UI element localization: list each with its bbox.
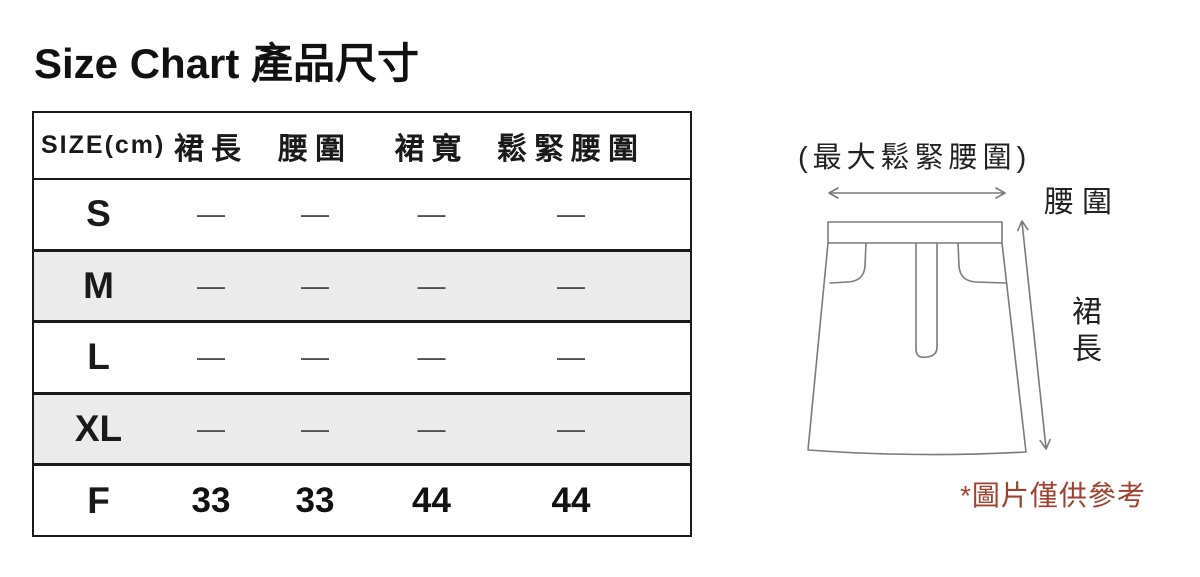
right-pocket-line xyxy=(958,243,1006,283)
size-chart-page: Size Chart 產品尺寸 SIZE(cm) 裙長 腰圍 裙寬 鬆緊腰圍 S… xyxy=(0,0,1200,577)
skirt-length-label: 裙長 xyxy=(1070,294,1104,368)
reference-note: *圖片僅供參考 xyxy=(960,474,1146,514)
col-header-skirt-length: 裙長 xyxy=(163,112,259,179)
value-cell: — xyxy=(163,322,259,393)
value-cell: — xyxy=(163,179,259,250)
value-cell: — xyxy=(371,393,492,464)
table-row-s: S — — — — xyxy=(33,179,691,250)
value-cell: 44 xyxy=(371,465,492,536)
value-cell: — xyxy=(163,393,259,464)
col-header-skirt-width: 裙寬 xyxy=(371,112,492,179)
col-header-elastic-waist: 鬆緊腰圍 xyxy=(492,112,691,179)
table-row-m: M — — — — xyxy=(33,250,691,321)
value-cell: — xyxy=(163,250,259,321)
col-header-size: SIZE(cm) xyxy=(33,112,163,179)
value-cell: 33 xyxy=(259,465,371,536)
value-cell: — xyxy=(492,322,691,393)
size-cell: S xyxy=(33,179,163,250)
size-cell: XL xyxy=(33,393,163,464)
max-elastic-waist-label: (最大鬆緊腰圍) xyxy=(798,134,1031,176)
table-row-f: F 33 33 44 44 xyxy=(33,465,691,536)
value-cell: 44 xyxy=(492,465,691,536)
center-placket-line xyxy=(916,243,937,357)
waistband-outline xyxy=(828,222,1002,243)
size-cell: L xyxy=(33,322,163,393)
value-cell: — xyxy=(259,179,371,250)
waist-label: 腰圍 xyxy=(1044,177,1120,221)
skirt-diagram: (最大鬆緊腰圍) 腰圍 裙長 *圖片僅供參考 xyxy=(780,130,1200,550)
value-cell: — xyxy=(492,250,691,321)
table-header-row: SIZE(cm) 裙長 腰圍 裙寬 鬆緊腰圍 xyxy=(33,112,691,179)
left-pocket-line xyxy=(830,243,866,283)
value-cell: — xyxy=(371,179,492,250)
value-cell: — xyxy=(259,250,371,321)
col-header-waist: 腰圍 xyxy=(259,112,371,179)
value-cell: — xyxy=(371,322,492,393)
size-table: SIZE(cm) 裙長 腰圍 裙寬 鬆緊腰圍 S — — — — M — — —… xyxy=(32,111,692,537)
page-title: Size Chart 產品尺寸 xyxy=(34,30,419,91)
value-cell: 33 xyxy=(163,465,259,536)
value-cell: — xyxy=(259,393,371,464)
size-cell: M xyxy=(33,250,163,321)
size-cell: F xyxy=(33,465,163,536)
value-cell: — xyxy=(259,322,371,393)
value-cell: — xyxy=(371,250,492,321)
skirt-body-outline xyxy=(808,243,1026,455)
value-cell: — xyxy=(492,179,691,250)
table-row-l: L — — — — xyxy=(33,322,691,393)
table-row-xl: XL — — — — xyxy=(33,393,691,464)
length-arrow xyxy=(1022,222,1046,448)
value-cell: — xyxy=(492,393,691,464)
